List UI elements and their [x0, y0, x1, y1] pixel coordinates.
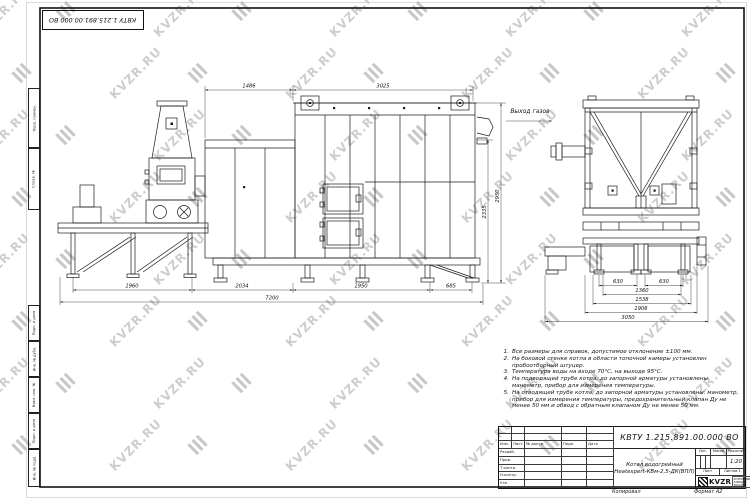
note-item: 4.На подводящей трубе котла, до запорной… — [500, 376, 740, 390]
boiler-doors — [320, 184, 363, 248]
title-block-cell: Лист — [512, 441, 525, 449]
dim-front-bottom-2: 2034 — [235, 284, 248, 290]
footer-format: Формат А2 — [694, 489, 722, 495]
title-block-empty-cell — [525, 449, 562, 457]
title-block-empty-cell — [512, 434, 525, 441]
title-block-empty-cell — [499, 434, 512, 441]
sheet-edge — [27, 3, 747, 498]
margin-field-label: Инв. № дубл. — [32, 347, 36, 372]
note-number: 2. — [500, 356, 512, 370]
dim-front-height-overall: 2950 — [495, 189, 501, 203]
title-block-empty-cell — [512, 427, 525, 434]
note-number: 5. — [500, 390, 512, 410]
lit-label: Лит. — [696, 449, 711, 456]
dim-front-top-right: 3025 — [376, 84, 390, 90]
mass-value-cell — [711, 456, 727, 469]
top-left-doc-stamp: КВТУ 1.215.891.00.000 ВО — [42, 10, 144, 30]
title-block-misc: Лит. Масса Масштаб 1:20 Лист Листов 1 KV… — [696, 449, 745, 488]
front-view — [58, 96, 493, 282]
side-view — [545, 96, 706, 274]
note-item: 3.Температура воды на входе 70°С, на вых… — [500, 369, 740, 376]
title-block-cell: Пров. — [499, 457, 525, 465]
side-view-base — [545, 208, 706, 274]
dim-side-630-left: 630 — [613, 279, 624, 285]
margin-field: Инв. № дубл. — [28, 341, 40, 377]
fuel-hopper — [145, 101, 205, 223]
title-block-empty-cell — [587, 434, 614, 441]
title-block-cell: Т.контр. — [499, 465, 525, 473]
title-block-empty-cell — [525, 427, 562, 434]
title-block-empty-cell — [587, 465, 614, 473]
dim-side-1360: 1360 — [635, 288, 649, 294]
title-block-cell: Утв. — [499, 480, 525, 488]
dim-front-top-left: 1486 — [242, 84, 256, 90]
title-block-empty-cell — [587, 480, 614, 488]
margin-field: Инв. № подл. — [28, 449, 40, 487]
footer-copied-by: Копировал — [612, 489, 641, 495]
engineering-drawing: Выход газов 1486 3025 2335 2950 — [0, 0, 750, 500]
margin-field-label: Взам. инв. № — [32, 383, 36, 407]
scale-label: Масштаб — [727, 449, 745, 456]
sheets-cell: Листов 1 — [720, 469, 745, 476]
note-text: Все размеры для справок, допустимое откл… — [512, 349, 740, 356]
note-number: 4. — [500, 376, 512, 390]
margin-field-label: Подп. и дата — [32, 419, 36, 443]
note-item: 1.Все размеры для справок, допустимое от… — [500, 349, 740, 356]
scale-value: 1:20 — [727, 456, 745, 469]
brand-logo: KVZR КОТЕЛЬНЫЕ ЗАВОДЫ РОССИИ — [696, 476, 745, 488]
title-block-doc-cell: КВТУ 1.215.891.00.000 ВО — [614, 427, 745, 449]
boiler-body — [293, 96, 477, 258]
title-block-cell: Дата — [587, 441, 614, 449]
title-block-empty-cell — [587, 449, 614, 457]
note-item: 2.На боковой стенке котла в области топо… — [500, 356, 740, 370]
support-frame — [213, 258, 480, 282]
title-block-left-grid: Изм.Лист№ докум.Подп.ДатаРазраб.Пров.Т.к… — [499, 427, 614, 488]
title-block-empty-cell — [525, 457, 562, 465]
title-block-empty-cell — [562, 427, 587, 434]
product-name-line1: Котел водогрейный — [626, 462, 683, 469]
title-block-cell: Подп. — [562, 441, 587, 449]
sheet-cell: Лист — [696, 469, 720, 476]
gas-outlet-callout: Выход газов — [506, 108, 552, 121]
title-block-empty-cell — [587, 472, 614, 480]
title-block-cell: Н.контр. — [499, 472, 525, 480]
title-block-cell: Разраб. — [499, 449, 525, 457]
title-block-empty-cell — [562, 472, 587, 480]
dim-front-bottom-1: 1960 — [125, 284, 139, 290]
gas-outlet-label: Выход газов — [510, 108, 550, 115]
note-text: Температура воды на входе 70°С, на выход… — [512, 369, 740, 376]
furnace-section — [205, 140, 295, 258]
sheets-value: 1 — [739, 469, 741, 473]
margin-field-label: Справ. № — [32, 170, 36, 187]
dim-side-overall-3050: 3050 — [621, 315, 635, 321]
title-block-empty-cell — [525, 472, 562, 480]
dim-front-overall-width: 7200 — [265, 296, 279, 302]
margin-field-label: Инв. № подл. — [32, 456, 36, 481]
note-number: 3. — [500, 369, 512, 376]
sheets-label: Листов — [724, 469, 737, 473]
title-block-empty-cell — [525, 480, 562, 488]
title-block-empty-cell — [562, 434, 587, 441]
note-item: 5.На отводящей трубе котла, до запорной … — [500, 390, 740, 410]
dim-side-630-right: 630 — [659, 279, 670, 285]
dimensions: 1486 3025 2335 2950 1960 2034 1 — [60, 84, 708, 324]
dim-front-height-inner: 2335 — [482, 205, 488, 219]
title-block-empty-cell — [499, 427, 512, 434]
dim-front-bottom-3: 1950 — [354, 284, 368, 290]
drawing-sheet: KVZR.RUKVZR.RUKVZR.RUKVZR.RUKVZR.RUKVZR.… — [0, 0, 750, 500]
kvzr-logo-subtext: КОТЕЛЬНЫЕ ЗАВОДЫ РОССИИ — [732, 476, 750, 488]
title-block-empty-cell — [562, 449, 587, 457]
title-block-empty-cell — [587, 457, 614, 465]
title-block-cell: № докум. — [525, 441, 562, 449]
dim-side-1538: 1538 — [635, 297, 649, 303]
drawing-frame — [40, 8, 744, 487]
note-text: На отводящей трубе котла, до запорной ар… — [512, 390, 740, 410]
kvzr-logo-icon — [698, 477, 708, 487]
margin-field: Справ. № — [28, 148, 40, 210]
note-number: 1. — [500, 349, 512, 356]
title-block-cell: Изм. — [499, 441, 512, 449]
inner-hopper — [590, 112, 692, 208]
title-block-empty-cell — [587, 427, 614, 434]
title-block-empty-cell — [525, 434, 562, 441]
margin-field: Перв. примен. — [28, 88, 40, 148]
margin-field-label: Подп. и дата — [32, 311, 36, 335]
title-block-empty-cell — [562, 480, 587, 488]
conveyor-feeder — [58, 185, 208, 278]
chimney — [152, 106, 192, 158]
doc-number: КВТУ 1.215.891.00.000 ВО — [620, 433, 739, 442]
margin-field: Подп. и дата — [28, 305, 40, 341]
title-block: Изм.Лист№ докум.Подп.ДатаРазраб.Пров.Т.к… — [498, 426, 746, 489]
product-name-line2: Heatexpert-КВм-2,5-ДК(ВПЛ) — [614, 469, 694, 476]
title-block-empty-cell — [562, 457, 587, 465]
margin-field-label: Перв. примен. — [32, 105, 36, 132]
note-text: На подводящей трубе котла, до запорной а… — [512, 376, 740, 390]
margin-field: Взам. инв. № — [28, 377, 40, 413]
dim-side-1906: 1906 — [634, 306, 648, 312]
notes-block: 1.Все размеры для справок, допустимое от… — [500, 349, 740, 410]
side-pipe — [551, 143, 585, 160]
title-block-empty-cell — [525, 465, 562, 473]
title-block-name-cell: Котел водогрейный Heatexpert-КВм-2,5-ДК(… — [614, 449, 696, 488]
top-left-doc-number: КВТУ 1.215.891.00.000 ВО — [49, 16, 136, 24]
margin-field: Подп. и дата — [28, 413, 40, 449]
note-text: На боковой стенке котла в области топочн… — [512, 356, 740, 370]
title-block-empty-cell — [562, 465, 587, 473]
kvzr-logo-text: KVZR — [709, 478, 731, 486]
dim-front-bottom-4: 685 — [446, 284, 457, 290]
mass-label: Масса — [711, 449, 727, 456]
